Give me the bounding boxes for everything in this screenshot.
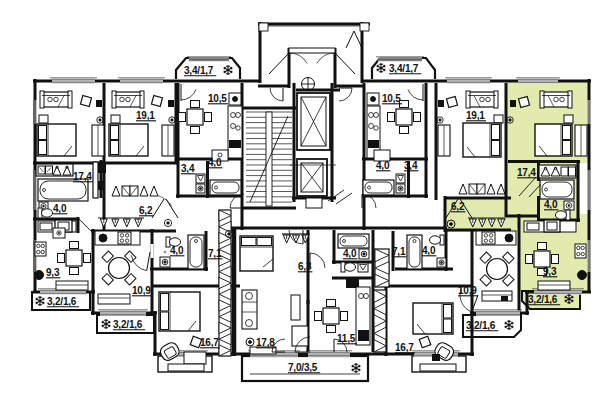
svg-text:17,4: 17,4 [73,171,92,182]
svg-text:4,0: 4,0 [544,199,558,210]
svg-text:17,4: 17,4 [517,167,536,178]
svg-text:6,2: 6,2 [451,201,465,212]
svg-text:4,0: 4,0 [170,245,184,256]
svg-text:6,2: 6,2 [139,205,153,216]
svg-text:10,9: 10,9 [458,285,477,296]
svg-text:17,8: 17,8 [256,337,275,348]
svg-text:6,3: 6,3 [298,261,312,272]
svg-text:7,1: 7,1 [208,248,222,259]
svg-text:19,1: 19,1 [466,110,485,121]
svg-text:3,2/1,6: 3,2/1,6 [528,294,558,305]
svg-text:3,2/1,6: 3,2/1,6 [466,320,496,331]
svg-text:7,0/3,5: 7,0/3,5 [288,362,318,373]
svg-text:9,3: 9,3 [543,266,557,277]
svg-text:3,4/1,7: 3,4/1,7 [184,65,214,76]
svg-text:4,0: 4,0 [343,248,357,259]
svg-text:11,5: 11,5 [337,333,356,344]
svg-text:7,1: 7,1 [392,246,406,257]
svg-text:10,5: 10,5 [382,93,401,104]
svg-text:4,0: 4,0 [422,245,436,256]
svg-text:4,0: 4,0 [53,203,67,214]
svg-text:3,4: 3,4 [181,163,195,174]
svg-text:16,7: 16,7 [200,337,219,348]
svg-text:4,0: 4,0 [208,157,222,168]
svg-text:3,2/1,6: 3,2/1,6 [113,319,143,330]
svg-text:10,5: 10,5 [208,93,227,104]
svg-text:3,4/1,7: 3,4/1,7 [389,63,419,74]
svg-text:4,0: 4,0 [376,160,390,171]
svg-text:19,1: 19,1 [136,110,155,121]
svg-text:10,9: 10,9 [132,285,151,296]
svg-text:3,4: 3,4 [404,160,418,171]
svg-text:16,7: 16,7 [395,342,414,353]
svg-text:3,2/1,6: 3,2/1,6 [47,296,77,307]
svg-text:9,3: 9,3 [46,267,60,278]
